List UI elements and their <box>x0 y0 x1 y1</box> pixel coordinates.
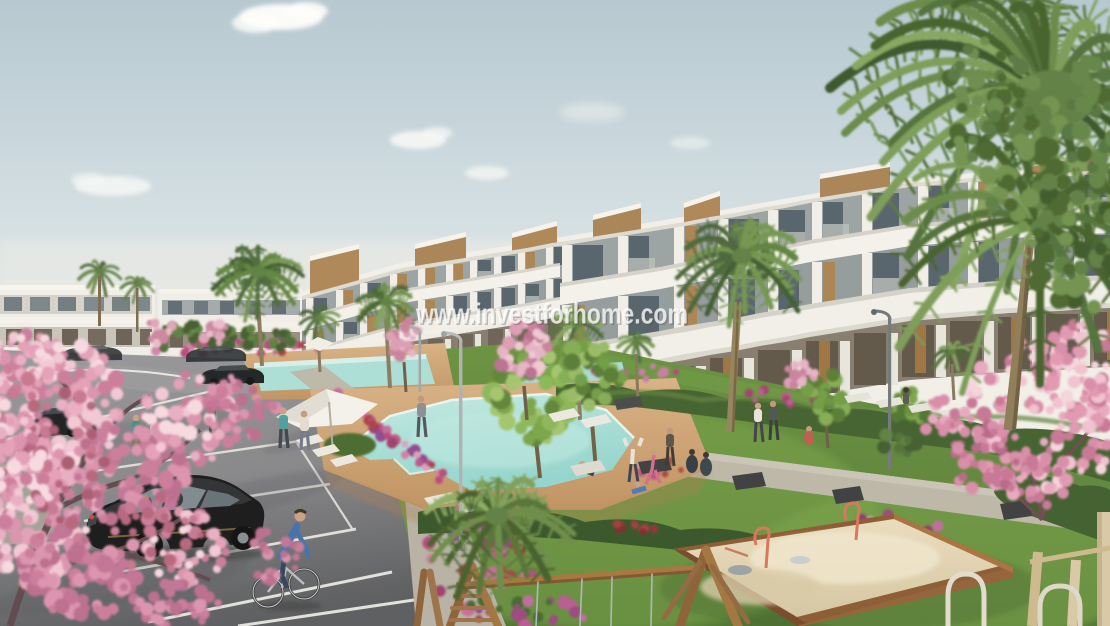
svg-text:www.investforhome.com: www.investforhome.com <box>415 299 688 331</box>
